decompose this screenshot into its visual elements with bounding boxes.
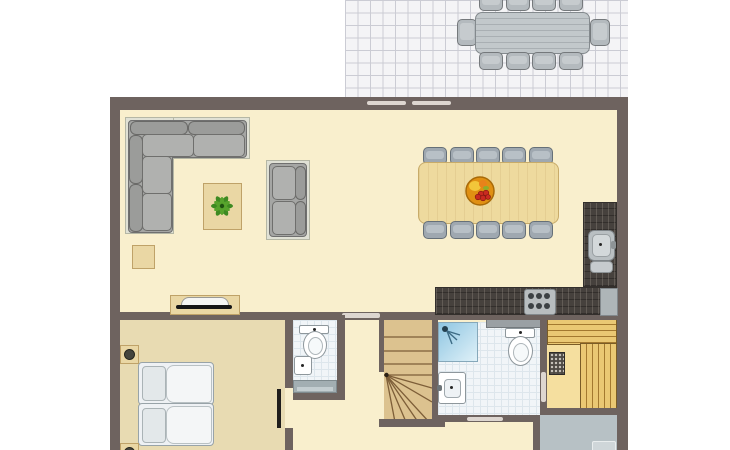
burner (544, 303, 550, 309)
single-bed (138, 403, 214, 446)
wc-toilet-icon (303, 331, 327, 359)
kitchen-appliance (600, 288, 618, 316)
single-bed (138, 362, 214, 405)
sofa-back-cushion (295, 166, 306, 200)
outdoor-chair (506, 52, 530, 70)
terrace-floor (345, 0, 628, 100)
tv (176, 305, 232, 309)
sink-drain (599, 243, 602, 246)
floor-plan (0, 0, 730, 450)
basin-drain (301, 364, 304, 367)
dining-chair (502, 221, 526, 239)
sauna-bench-top (547, 318, 617, 345)
duvet (166, 365, 212, 403)
stairs (384, 318, 432, 422)
fruit-bowl-icon (464, 175, 496, 207)
side-table (132, 245, 155, 269)
outdoor-chair (559, 0, 583, 11)
wall-stairs-right (432, 315, 438, 425)
burner (536, 303, 542, 309)
wall-bedroom-upper (285, 320, 293, 388)
sofa-back-cushion (129, 184, 143, 232)
burner (536, 293, 542, 299)
basin-drain (450, 386, 453, 389)
burner (528, 293, 534, 299)
outdoor-dining-table (475, 12, 590, 54)
wc-cabinet-front (297, 387, 333, 391)
sofa-back-cushion (130, 121, 188, 135)
sofa-seat-cushion (142, 134, 194, 157)
duvet (166, 406, 212, 444)
toilet-bowl (308, 337, 323, 355)
hall-opening-marker (342, 313, 380, 318)
dining-chair (529, 221, 553, 239)
sofa-seat-cushion (272, 166, 296, 200)
faucet-icon (611, 241, 616, 249)
wall-wc-bottom (293, 393, 345, 400)
bedside-lamp (120, 345, 139, 364)
outdoor-chair (479, 0, 503, 11)
dining-chair (476, 221, 500, 239)
shower-head-icon (440, 324, 466, 350)
sauna-heater (549, 352, 565, 375)
outdoor-chair (532, 52, 556, 70)
sauna-bench-side (580, 343, 617, 409)
wall-wc-right (337, 315, 345, 400)
flush-button (519, 331, 522, 334)
wall-bedroom-lower (285, 428, 293, 450)
kitchen-sink (588, 230, 615, 261)
terrace-door-marker (412, 101, 451, 105)
outdoor-chair (479, 52, 503, 70)
pillow (142, 366, 166, 401)
outdoor-chair (532, 0, 556, 11)
stairs-treads (384, 318, 432, 422)
burner (528, 303, 534, 309)
wall-stairs-left (379, 318, 384, 372)
lamp-icon (124, 349, 135, 360)
stove (524, 289, 556, 315)
sofa-seat-cushion (142, 156, 172, 194)
sofa-seat-cushion (142, 193, 172, 231)
sofa-back-cushion (295, 201, 306, 235)
sofa-back-cushion (129, 135, 143, 184)
sofa-seat-cushion (272, 201, 296, 235)
wall-left (110, 97, 120, 450)
doormat (592, 441, 616, 450)
dining-chair (450, 221, 474, 239)
sofa-back-cushion (188, 121, 245, 135)
dining-chair (423, 221, 447, 239)
bathroom-washbasin (438, 372, 466, 404)
outdoor-chair (506, 0, 530, 11)
bedside-lamp (120, 443, 139, 450)
sauna-door-marker (541, 372, 546, 402)
outdoor-chair (457, 19, 477, 46)
bedroom-door-leaf (277, 389, 281, 428)
pillow (142, 408, 166, 443)
burner (544, 293, 550, 299)
wall-right (617, 97, 628, 450)
wc-cabinet (293, 380, 337, 393)
toilet-bowl (513, 343, 529, 362)
sink-drainer (590, 261, 613, 273)
faucet-icon (437, 385, 442, 391)
plant-icon (208, 192, 236, 220)
shower (438, 322, 478, 362)
terrace-door-marker (367, 101, 406, 105)
wc-washbasin (294, 356, 312, 375)
sofa-seat-cushion (193, 134, 245, 157)
bathroom-door-marker (467, 417, 503, 421)
toilet-icon (508, 336, 533, 366)
outdoor-chair (559, 52, 583, 70)
outdoor-chair (590, 19, 610, 46)
wall-stairs-bottom (379, 419, 445, 427)
wall-sauna-bottom (540, 408, 617, 415)
wall-entrance-left (533, 422, 540, 450)
